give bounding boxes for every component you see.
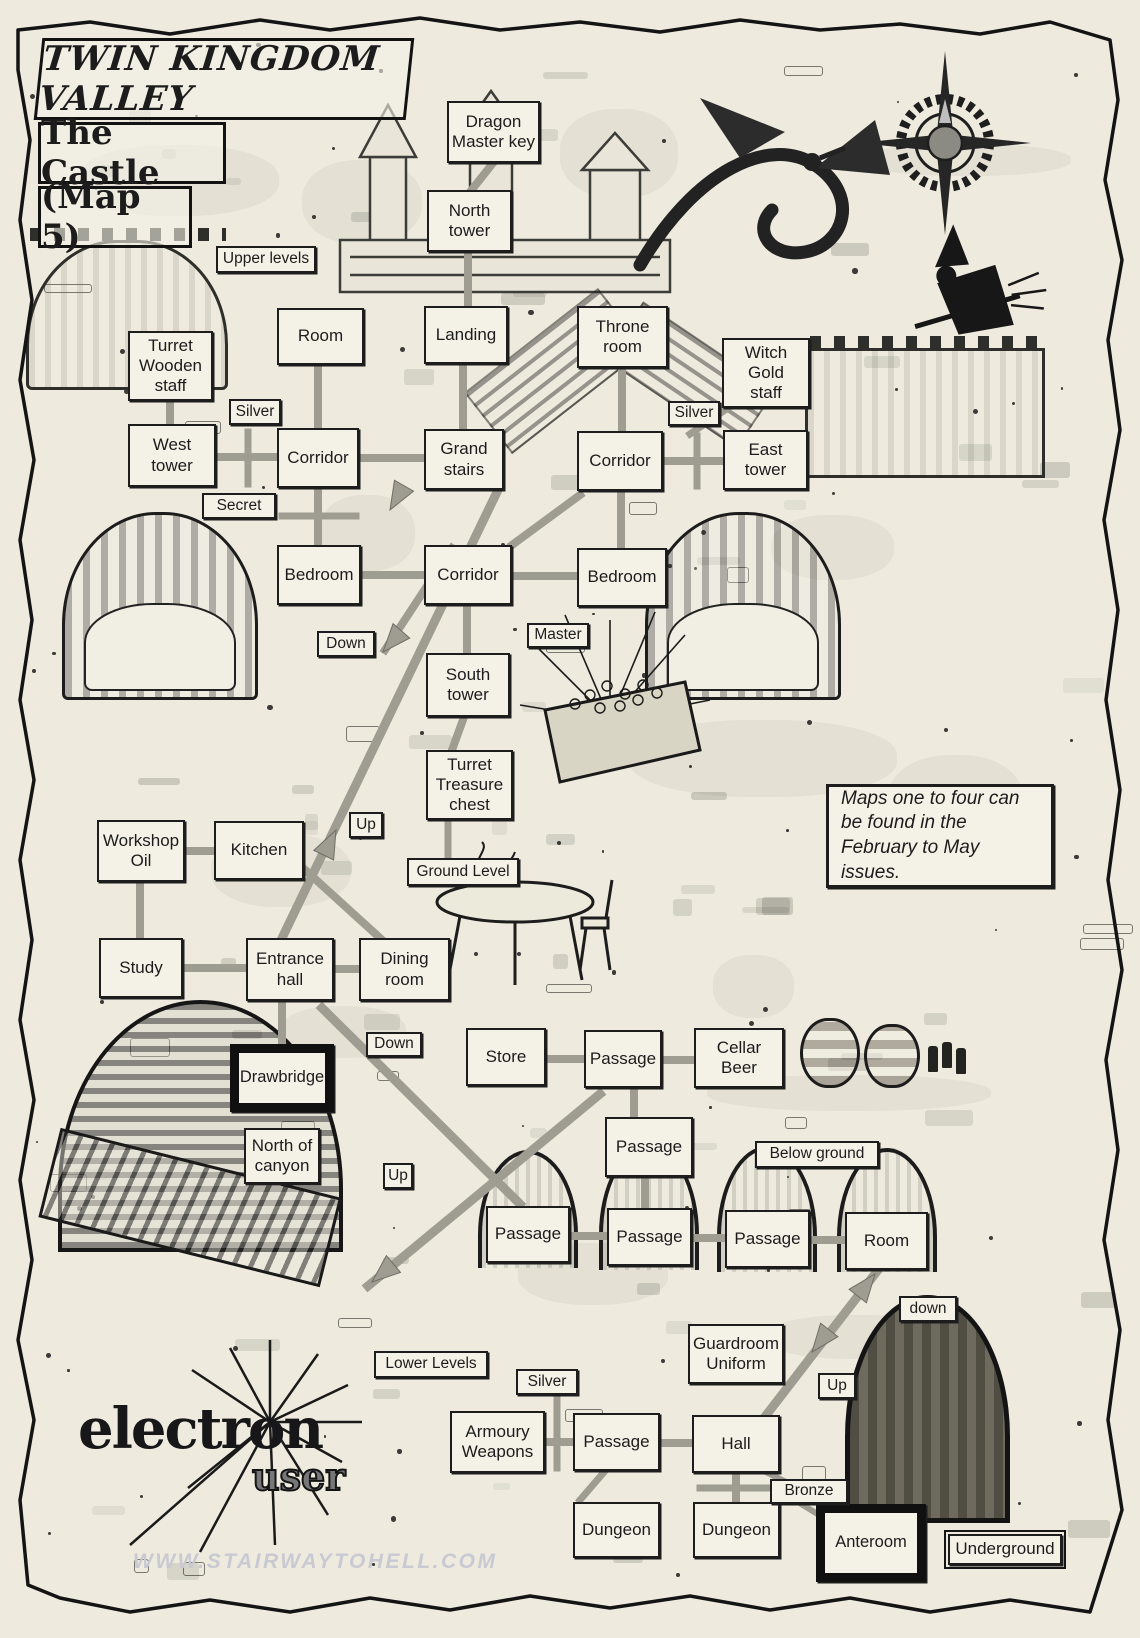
map-connector (303, 868, 380, 938)
map-number: (Map 5) (38, 186, 192, 248)
electron-user-logo: electron user (70, 1330, 400, 1560)
map-connector (512, 495, 580, 545)
map-arrow (375, 624, 410, 660)
map-connector (322, 1008, 520, 1204)
page-title-text: TWIN KINGDOM VALLEY (37, 39, 411, 119)
map-connector (452, 717, 464, 750)
map-connector (798, 1502, 824, 1518)
map-connector (690, 408, 728, 434)
map-connector (580, 1471, 605, 1500)
map-number-text: (Map 5) (41, 177, 189, 257)
map-arrow (380, 480, 413, 515)
page-title: TWIN KINGDOM VALLEY (34, 38, 415, 120)
logo-user-text: user (252, 1454, 345, 1499)
map-connector (758, 1468, 790, 1484)
map-connector (368, 1094, 600, 1286)
watermark-text: WWW.STAIRWAYTOHELL.COM (133, 1550, 498, 1574)
logo-electron-text: electron (78, 1396, 322, 1462)
magazine-map-page: Dragon Master keyNorth towerRoomLandingT… (0, 0, 1140, 1638)
map-connector (470, 163, 493, 192)
page-subtitle: The Castle (38, 122, 226, 184)
